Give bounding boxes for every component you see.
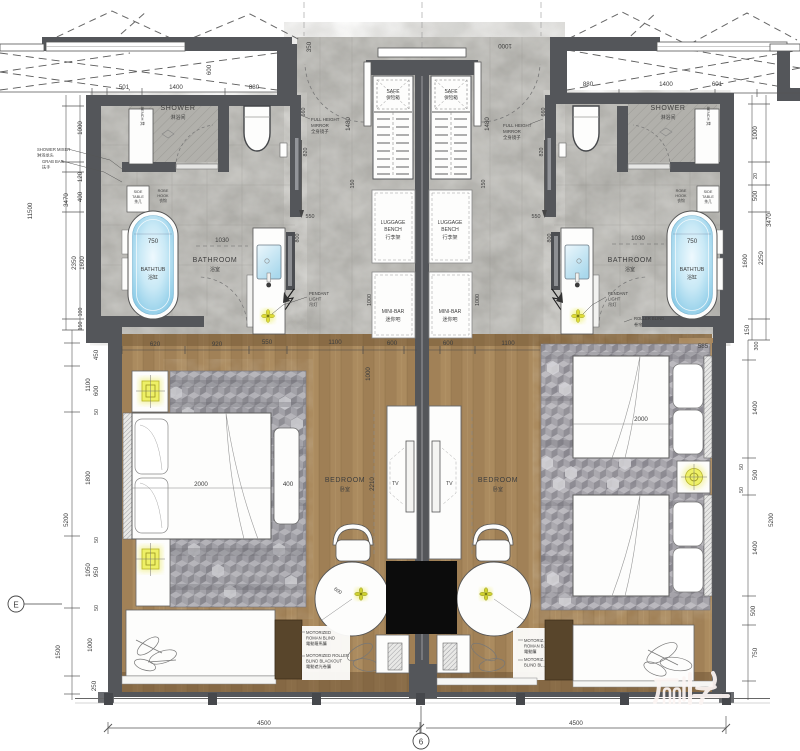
svg-text:880: 880	[249, 84, 260, 91]
svg-text:淋浴间: 淋浴间	[660, 114, 675, 121]
svg-text:LUGGAGE: LUGGAGE	[381, 220, 406, 226]
svg-text:淋浴龙头: 淋浴龙头	[37, 152, 54, 159]
svg-text:TV: TV	[446, 481, 453, 487]
svg-text:1480: 1480	[484, 117, 491, 131]
svg-text:SHOWER MIXER: SHOWER MIXER	[37, 147, 70, 152]
svg-text:1600: 1600	[742, 254, 749, 268]
svg-text:600: 600	[93, 385, 100, 396]
svg-text:2210: 2210	[369, 477, 376, 491]
svg-text:BENCH 凳: BENCH 凳	[140, 106, 146, 125]
svg-text:HOOK: HOOK	[675, 194, 687, 198]
svg-text:1100: 1100	[85, 378, 92, 392]
svg-text:2000: 2000	[634, 416, 648, 423]
svg-text:585: 585	[698, 343, 709, 350]
svg-text:1400: 1400	[659, 81, 673, 88]
svg-text:BENCH 凳: BENCH 凳	[706, 106, 712, 125]
svg-text:MOTORIZ...: MOTORIZ...	[524, 638, 547, 643]
svg-text:保险箱: 保险箱	[444, 94, 458, 101]
svg-text:浴室: 浴室	[625, 266, 635, 273]
svg-text:行李架: 行李架	[385, 234, 400, 241]
svg-text:TABLE: TABLE	[132, 195, 144, 199]
svg-text:LUGGAGE: LUGGAGE	[438, 220, 463, 226]
svg-text:2000: 2000	[194, 481, 208, 488]
svg-text:MIRROR: MIRROR	[503, 129, 521, 134]
svg-text:ROBE: ROBE	[158, 189, 169, 193]
svg-text:920: 920	[212, 341, 223, 348]
svg-text:950: 950	[93, 566, 100, 577]
svg-text:E: E	[13, 601, 18, 610]
svg-text:扶手: 扶手	[42, 164, 50, 171]
svg-text:PENDANT: PENDANT	[309, 291, 329, 296]
svg-text:6: 6	[419, 738, 424, 747]
svg-text:50: 50	[739, 487, 745, 493]
svg-text:820: 820	[539, 148, 545, 157]
svg-text:1400: 1400	[169, 84, 183, 91]
svg-text:衣钩: 衣钩	[677, 198, 685, 203]
svg-text:FULL HEIGHT: FULL HEIGHT	[311, 117, 340, 122]
svg-text:4500: 4500	[257, 720, 271, 727]
svg-text:50: 50	[94, 409, 100, 415]
svg-text:1000: 1000	[475, 294, 481, 306]
svg-text:400: 400	[283, 481, 294, 488]
svg-text:迷你吧: 迷你吧	[442, 316, 457, 323]
svg-text:BLIND BLACKOUT: BLIND BLACKOUT	[306, 659, 343, 664]
svg-text:1000: 1000	[365, 367, 372, 381]
svg-text:1480: 1480	[345, 117, 352, 131]
svg-text:350: 350	[306, 41, 313, 52]
svg-text:MOTORIZ...: MOTORIZ...	[524, 657, 547, 662]
svg-text:11500: 11500	[27, 202, 34, 219]
svg-text:迷你吧: 迷你吧	[385, 316, 400, 323]
svg-text:250: 250	[91, 680, 98, 691]
svg-text:800: 800	[295, 234, 301, 243]
svg-text:501: 501	[119, 84, 130, 91]
svg-text:HOOK: HOOK	[157, 194, 169, 198]
svg-text:1000: 1000	[752, 126, 759, 140]
svg-text:BATHTUB: BATHTUB	[680, 267, 705, 273]
svg-text:750: 750	[148, 238, 159, 245]
svg-text:FULL HEIGHT: FULL HEIGHT	[503, 123, 532, 128]
svg-text:2350: 2350	[71, 256, 78, 270]
svg-text:BEDROOM: BEDROOM	[325, 477, 365, 484]
svg-text:1600: 1600	[79, 256, 86, 270]
svg-text:750: 750	[687, 238, 698, 245]
svg-text:5200: 5200	[63, 513, 70, 527]
svg-text:880: 880	[583, 81, 594, 88]
svg-text:1050: 1050	[85, 563, 92, 577]
svg-text:卧室: 卧室	[340, 486, 350, 493]
svg-text:50: 50	[94, 537, 100, 543]
svg-text:120: 120	[77, 171, 84, 182]
svg-text:3470: 3470	[63, 193, 70, 207]
svg-text:500: 500	[752, 469, 759, 480]
svg-text:GRAB BAR: GRAB BAR	[42, 159, 64, 164]
svg-text:620: 620	[150, 341, 161, 348]
svg-text:4500: 4500	[569, 720, 583, 727]
svg-text:1100: 1100	[501, 340, 515, 347]
svg-text:ROBE: ROBE	[676, 189, 687, 193]
svg-text:550: 550	[262, 339, 273, 346]
svg-text:TV: TV	[392, 481, 399, 487]
svg-text:電動簾: 電動簾	[524, 648, 537, 655]
svg-text:50: 50	[94, 605, 100, 611]
svg-text:MINI-BAR: MINI-BAR	[439, 309, 462, 315]
svg-text:600: 600	[206, 64, 213, 75]
svg-text:1800: 1800	[85, 471, 92, 485]
svg-text:ROMAN BLIND: ROMAN BLIND	[306, 636, 335, 641]
svg-text:行李架: 行李架	[442, 234, 457, 241]
svg-text:3470: 3470	[766, 213, 773, 227]
svg-text:吊灯: 吊灯	[309, 301, 318, 308]
svg-text:茶几: 茶几	[134, 199, 142, 204]
svg-text:BATHROOM: BATHROOM	[608, 257, 653, 264]
svg-text:ROMAN B...: ROMAN B...	[524, 644, 547, 649]
svg-text:ROLLER BLIND: ROLLER BLIND	[634, 316, 664, 321]
svg-text:1030: 1030	[631, 235, 645, 242]
svg-text:浴室: 浴室	[210, 266, 220, 273]
svg-text:50: 50	[739, 464, 745, 470]
svg-text:1000: 1000	[498, 42, 512, 49]
svg-text:1500: 1500	[55, 645, 62, 659]
svg-text:660: 660	[301, 108, 307, 117]
svg-text:浴缸: 浴缸	[687, 274, 697, 281]
svg-text:MOTORIZED ROLLER: MOTORIZED ROLLER	[306, 653, 349, 658]
svg-text:1030: 1030	[215, 237, 229, 244]
svg-text:20: 20	[753, 173, 759, 179]
svg-text:LIGHT: LIGHT	[608, 297, 621, 302]
svg-text:全身镜子: 全身镜子	[503, 134, 521, 141]
svg-text:150: 150	[481, 180, 487, 189]
svg-text:BLIND BL...: BLIND BL...	[524, 663, 546, 668]
svg-text:150: 150	[350, 180, 356, 189]
svg-text:1000: 1000	[87, 638, 94, 652]
svg-text:150: 150	[78, 322, 84, 331]
svg-text:5200: 5200	[768, 513, 775, 527]
svg-text:衣钩: 衣钩	[159, 198, 167, 203]
svg-text:1400: 1400	[752, 541, 759, 555]
svg-text:800: 800	[547, 234, 553, 243]
svg-text:450: 450	[93, 349, 100, 360]
svg-text:BATHTUB: BATHTUB	[141, 267, 166, 273]
svg-text:500: 500	[750, 605, 757, 616]
svg-text:TABLE: TABLE	[702, 195, 714, 199]
svg-text:電動羅馬簾: 電動羅馬簾	[306, 640, 327, 647]
svg-text:400: 400	[77, 191, 84, 202]
svg-text:卧室: 卧室	[493, 486, 503, 493]
svg-text:MINI-BAR: MINI-BAR	[382, 309, 405, 315]
svg-text:550: 550	[306, 214, 315, 220]
svg-text:750: 750	[752, 647, 759, 658]
svg-text:MIRROR: MIRROR	[311, 123, 329, 128]
svg-text:SHOWER: SHOWER	[650, 105, 685, 112]
svg-text:LIGHT: LIGHT	[309, 297, 322, 302]
svg-text:600: 600	[387, 340, 398, 347]
svg-text:1400: 1400	[752, 401, 759, 415]
svg-text:1000: 1000	[367, 294, 373, 306]
svg-text:601: 601	[712, 81, 723, 88]
svg-text:550: 550	[532, 214, 541, 220]
svg-text:BEDROOM: BEDROOM	[478, 477, 518, 484]
svg-text:150: 150	[744, 324, 751, 335]
svg-text:全身镜子: 全身镜子	[311, 128, 329, 135]
svg-text:SIDE: SIDE	[704, 190, 713, 194]
svg-text:BENCH: BENCH	[384, 227, 402, 233]
svg-text:浴缸: 浴缸	[148, 274, 158, 281]
svg-text:BATHROOM: BATHROOM	[193, 257, 238, 264]
svg-text:PENDANT: PENDANT	[608, 291, 628, 296]
svg-text:2250: 2250	[758, 251, 765, 265]
svg-text:660: 660	[541, 108, 547, 117]
svg-text:300: 300	[754, 342, 760, 351]
svg-text:100: 100	[78, 308, 84, 317]
svg-text:卷帘: 卷帘	[634, 321, 642, 328]
svg-text:600: 600	[443, 340, 454, 347]
svg-text:SIDE: SIDE	[134, 190, 143, 194]
svg-text:電動遮光卷簾: 電動遮光卷簾	[306, 663, 331, 670]
svg-text:吊灯: 吊灯	[608, 301, 617, 308]
svg-text:BENCH: BENCH	[441, 227, 459, 233]
svg-text:保险箱: 保险箱	[386, 94, 400, 101]
svg-text:淋浴间: 淋浴间	[170, 114, 185, 121]
svg-text:500: 500	[752, 190, 759, 201]
svg-text:1100: 1100	[328, 339, 342, 346]
svg-text:SHOWER: SHOWER	[160, 105, 195, 112]
svg-text:茶几: 茶几	[704, 199, 712, 204]
svg-text:MOTORIZED: MOTORIZED	[306, 630, 331, 635]
svg-text:820: 820	[303, 148, 309, 157]
svg-text:1000: 1000	[77, 121, 84, 135]
